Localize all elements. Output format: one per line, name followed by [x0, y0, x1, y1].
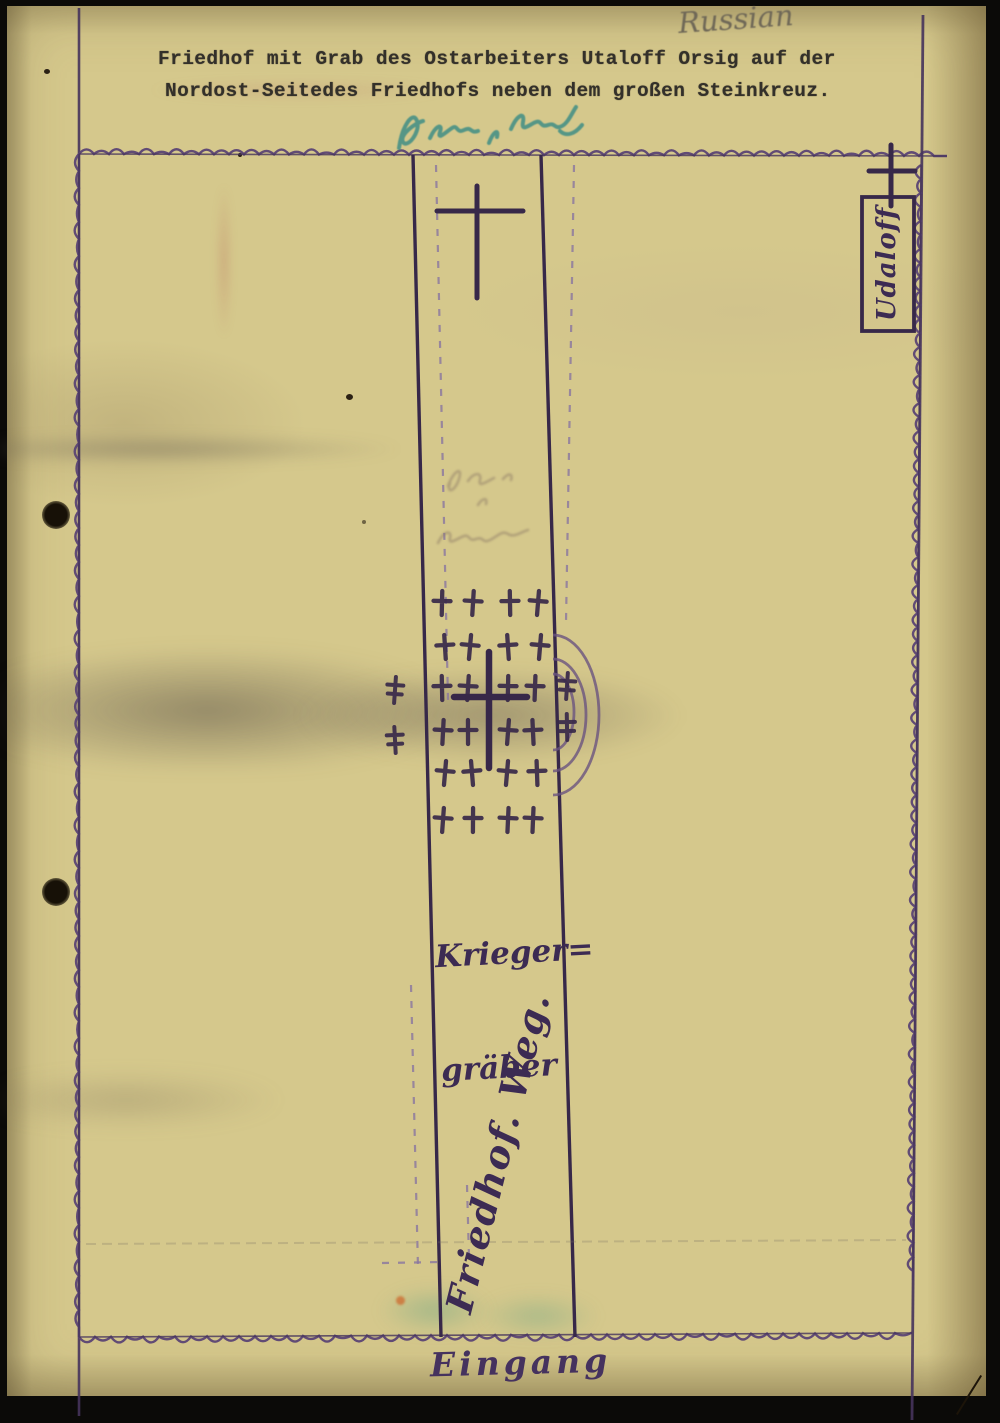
title-line-1: Friedhof mit Grab des Ostarbeiters Utalo… [158, 48, 836, 70]
grave-cross [434, 720, 452, 745]
teal-squiggle [511, 107, 582, 134]
grave-cross [436, 760, 455, 785]
grave-cross [459, 720, 476, 744]
grave-cross [528, 761, 546, 786]
teal-handwriting-note [399, 107, 582, 148]
teal-squiggle [399, 117, 497, 148]
grave-box-label: Udaloff [872, 204, 902, 324]
grave-cross [524, 808, 542, 833]
outside-grave-cross [386, 676, 404, 703]
grave-cross [524, 720, 542, 745]
dashed-guide-line [411, 985, 418, 1268]
grave-cross [499, 634, 518, 659]
dashed-guide-line [566, 165, 574, 622]
grave-cross [433, 591, 451, 615]
dashed-guide-line [382, 1262, 442, 1263]
title-line-2: Nordost-Seitedes Friedhofs neben dem gro… [165, 80, 831, 102]
grave-cross [464, 591, 482, 616]
grave-cross [531, 634, 550, 659]
grave-cross [460, 634, 479, 659]
grave-cross [501, 591, 518, 615]
grave-cross [499, 719, 518, 744]
grave-cross [498, 760, 517, 785]
grave-cross [463, 760, 482, 785]
path-left-edge [413, 155, 441, 1337]
pencil-handwriting-note [438, 471, 528, 543]
entrance-label: Eingang [430, 1341, 612, 1385]
grave-cross [434, 807, 453, 832]
outside-grave-cross [386, 727, 403, 754]
grave-cross [436, 634, 454, 659]
grave-cross [529, 590, 548, 615]
dashed-guide-line [436, 165, 448, 700]
scanned-document: Friedhof mit Grab des Ostarbeiters Utalo… [0, 0, 1000, 1423]
pencil-squiggle [448, 471, 512, 505]
grave-cross [464, 808, 481, 832]
war-graves-line-1: Krieger= [434, 930, 594, 976]
pencil-squiggle [438, 530, 528, 543]
grave-cross [499, 808, 517, 833]
